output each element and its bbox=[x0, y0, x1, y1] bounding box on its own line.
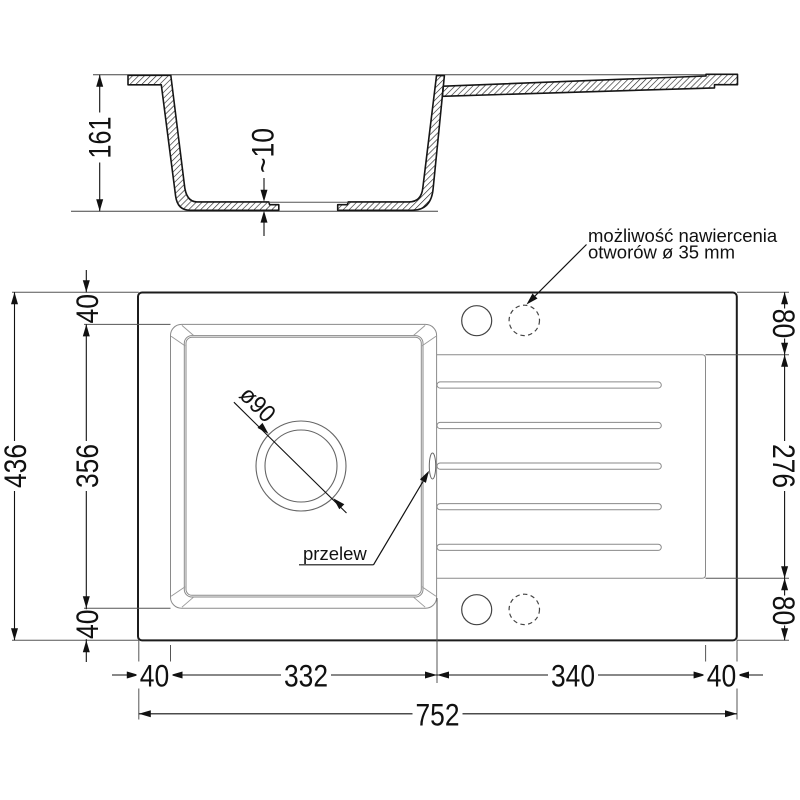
svg-text:40: 40 bbox=[69, 294, 105, 324]
svg-text:40: 40 bbox=[707, 658, 737, 694]
svg-text:przelew: przelew bbox=[303, 543, 367, 564]
svg-text:340: 340 bbox=[551, 658, 595, 694]
svg-text:otworów ø 35 mm: otworów ø 35 mm bbox=[588, 242, 735, 263]
svg-text:~10: ~10 bbox=[245, 128, 281, 173]
svg-text:80: 80 bbox=[766, 309, 800, 339]
svg-text:332: 332 bbox=[284, 658, 328, 694]
svg-text:356: 356 bbox=[69, 444, 105, 488]
svg-text:40: 40 bbox=[140, 658, 170, 694]
svg-text:161: 161 bbox=[82, 117, 118, 159]
svg-text:752: 752 bbox=[416, 696, 460, 732]
svg-text:40: 40 bbox=[69, 609, 105, 639]
svg-text:436: 436 bbox=[0, 444, 33, 488]
svg-text:276: 276 bbox=[766, 444, 800, 488]
svg-text:80: 80 bbox=[766, 596, 800, 626]
